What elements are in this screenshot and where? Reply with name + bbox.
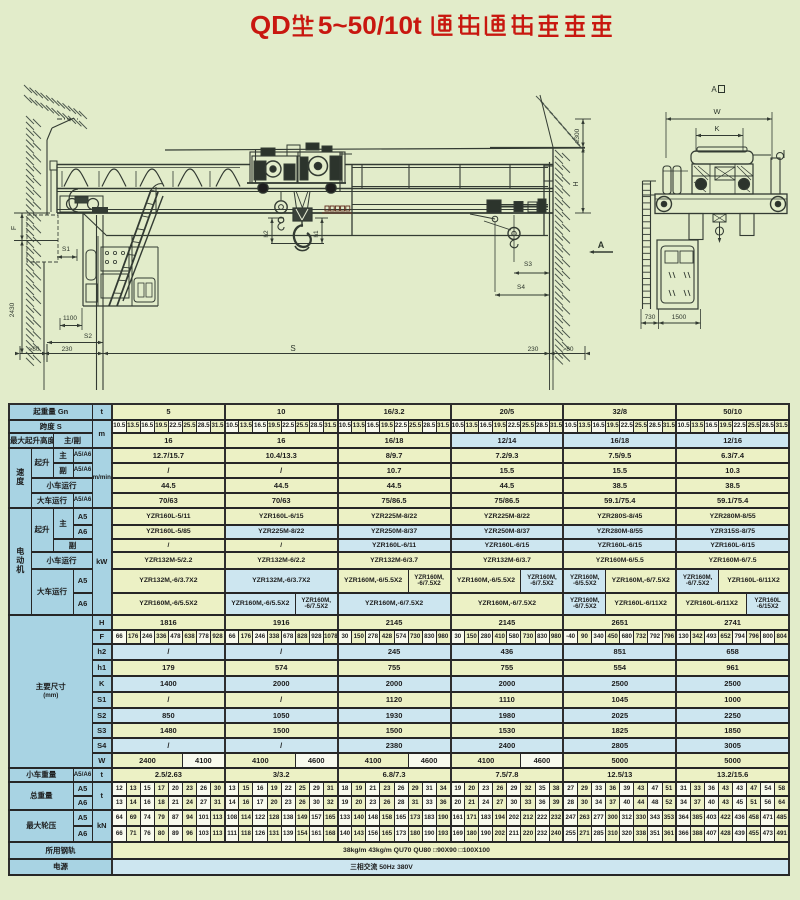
svg-text:S1: S1 <box>62 246 70 253</box>
svg-text:S4: S4 <box>517 284 525 291</box>
svg-text:S3: S3 <box>524 261 532 268</box>
svg-text:A: A <box>598 240 605 250</box>
svg-text:h1: h1 <box>313 230 320 238</box>
svg-text:W: W <box>713 107 721 116</box>
svg-text:S2: S2 <box>84 333 92 340</box>
svg-text:>80: >80 <box>562 346 573 353</box>
svg-text:2430: 2430 <box>9 302 16 317</box>
svg-text:230: 230 <box>62 346 73 353</box>
svg-text:1500: 1500 <box>672 314 687 321</box>
svg-text:1100: 1100 <box>63 315 77 322</box>
svg-text:S: S <box>290 344 295 353</box>
svg-text:A: A <box>711 85 717 94</box>
svg-text:h2: h2 <box>263 230 270 238</box>
svg-text:230: 230 <box>528 346 539 353</box>
svg-text:K: K <box>714 124 719 133</box>
svg-text:H: H <box>573 181 580 186</box>
svg-text:730: 730 <box>645 314 656 321</box>
svg-text:>80: >80 <box>28 346 39 353</box>
svg-text:≥300: ≥300 <box>574 128 581 143</box>
svg-text:F: F <box>11 226 18 230</box>
